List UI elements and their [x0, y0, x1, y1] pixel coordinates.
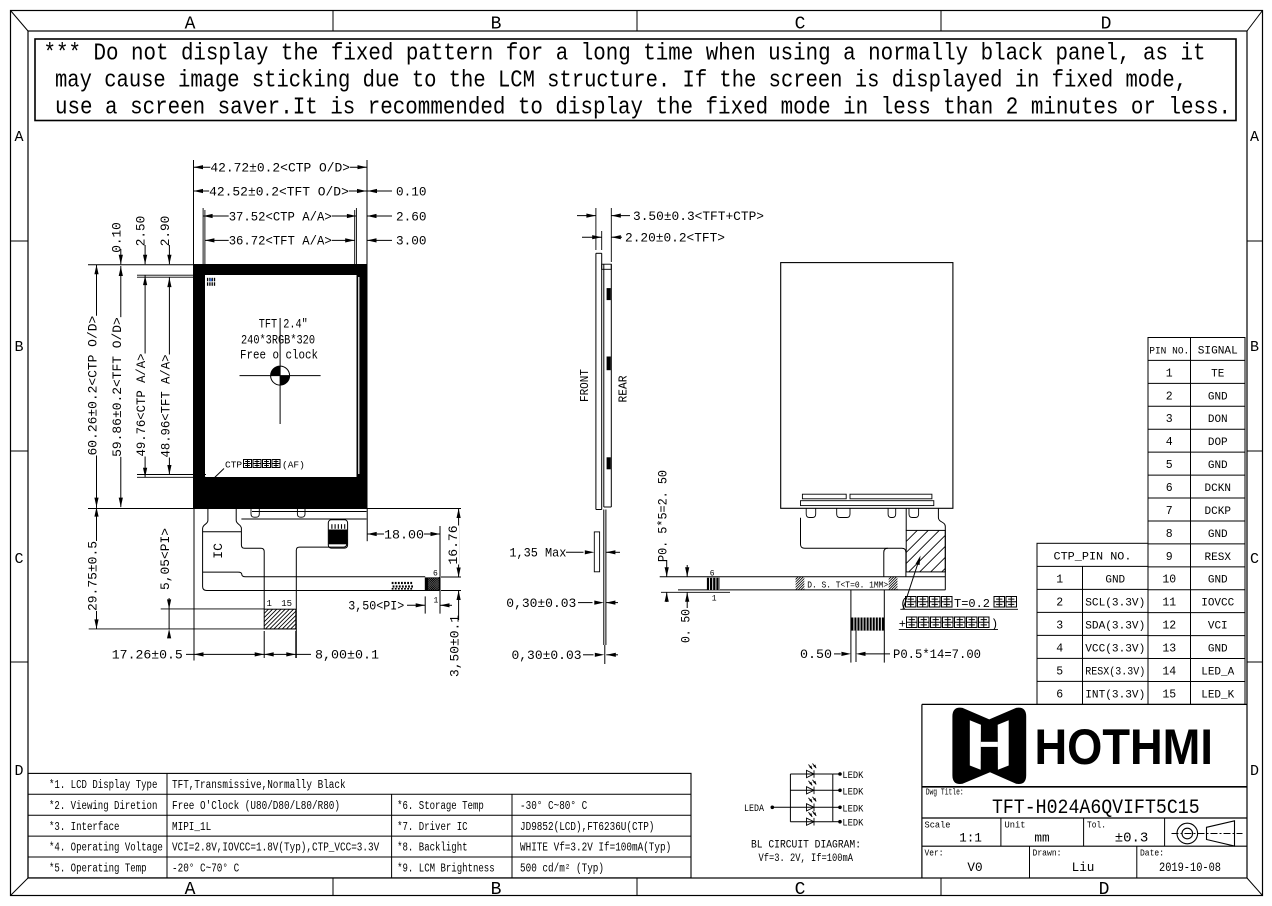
svg-text:B: B — [14, 339, 23, 356]
svg-text:48.96<TFT A/A>: 48.96<TFT A/A> — [158, 355, 173, 458]
svg-text:14: 14 — [1162, 665, 1176, 678]
svg-text:1: 1 — [1056, 573, 1063, 586]
svg-text:37.52<CTP A/A>: 37.52<CTP A/A> — [229, 209, 332, 224]
svg-text:LEDA: LEDA — [744, 803, 765, 815]
svg-text:3: 3 — [1056, 619, 1063, 632]
svg-text:±0.3: ±0.3 — [1115, 831, 1149, 847]
svg-text:9: 9 — [1166, 551, 1173, 564]
svg-text:*7. Driver IC: *7. Driver IC — [397, 821, 468, 834]
svg-text:16.76: 16.76 — [446, 526, 461, 565]
svg-text:GND: GND — [1208, 529, 1228, 541]
svg-text:13: 13 — [1162, 643, 1176, 656]
svg-text:TFT 2.4": TFT 2.4" — [259, 317, 308, 332]
svg-text:17.26±0.5: 17.26±0.5 — [112, 648, 183, 663]
svg-text:36.72<TFT A/A>: 36.72<TFT A/A> — [229, 234, 332, 249]
svg-text:18.00: 18.00 — [384, 527, 424, 542]
svg-text:1: 1 — [434, 597, 439, 606]
svg-text:C: C — [1250, 551, 1259, 568]
svg-text:DCKN: DCKN — [1205, 483, 1231, 495]
svg-text:BL CIRCUIT DIAGRAM:: BL CIRCUIT DIAGRAM: — [751, 840, 861, 852]
svg-text:60.26±0.2<CTP O/D>: 60.26±0.2<CTP O/D> — [86, 316, 101, 456]
svg-text:mm: mm — [1034, 831, 1049, 846]
svg-text:RESX: RESX — [1205, 552, 1232, 564]
svg-text:Free O'Clock (U80/D80/L80/R80): Free O'Clock (U80/D80/L80/R80) — [172, 800, 340, 813]
svg-text:B: B — [491, 880, 502, 900]
svg-text:Unit: Unit — [1005, 820, 1026, 831]
svg-text:HOTHMI: HOTHMI — [1035, 719, 1213, 775]
svg-text:4: 4 — [1166, 436, 1173, 449]
svg-text:12: 12 — [1162, 620, 1176, 633]
svg-text:GND: GND — [1208, 644, 1228, 656]
svg-text:5: 5 — [1056, 665, 1063, 678]
svg-text:11: 11 — [1162, 597, 1176, 610]
svg-text:INT(3.3V): INT(3.3V) — [1085, 689, 1145, 701]
svg-text:D. S. T<T=0. 1MM>: D. S. T<T=0. 1MM> — [807, 580, 888, 591]
svg-text:*6. Storage Temp: *6. Storage Temp — [397, 800, 484, 813]
svg-text:0. 50: 0. 50 — [679, 609, 694, 643]
svg-text:P0.5*14=7.00: P0.5*14=7.00 — [893, 647, 981, 662]
svg-text:LEDK: LEDK — [842, 786, 864, 798]
svg-text:MIPI_1L: MIPI_1L — [172, 821, 211, 834]
svg-text:6: 6 — [1166, 482, 1173, 495]
svg-text:DON: DON — [1208, 414, 1228, 426]
svg-text:D: D — [1101, 14, 1112, 34]
svg-text:LEDK: LEDK — [842, 818, 864, 830]
svg-text:2: 2 — [1166, 390, 1173, 403]
svg-text:5: 5 — [1166, 459, 1173, 472]
svg-text:B: B — [1250, 339, 1259, 356]
svg-text:2.50: 2.50 — [134, 216, 149, 246]
svg-text:49.76<CTP A/A>: 49.76<CTP A/A> — [134, 354, 149, 457]
svg-text:SCL(3.3V): SCL(3.3V) — [1085, 597, 1145, 609]
svg-text:C: C — [795, 880, 806, 900]
svg-text:VCI: VCI — [1208, 621, 1228, 633]
svg-text:3,50<PI>: 3,50<PI> — [348, 599, 404, 614]
svg-text:A: A — [185, 14, 196, 34]
svg-text:42.52±0.2<TFT O/D>: 42.52±0.2<TFT O/D> — [209, 184, 349, 199]
svg-text:CTP: CTP — [225, 460, 242, 471]
svg-text:LED_K: LED_K — [1201, 689, 1234, 701]
svg-text:3: 3 — [1166, 413, 1173, 426]
svg-text:A: A — [185, 880, 196, 900]
svg-text:10: 10 — [1162, 574, 1176, 587]
svg-text:D: D — [1250, 763, 1259, 780]
svg-text:1: 1 — [267, 599, 272, 609]
svg-text:D: D — [1099, 880, 1110, 900]
svg-text:8: 8 — [1166, 528, 1173, 541]
svg-text:P0. 5*5=2. 50: P0. 5*5=2. 50 — [656, 470, 671, 562]
svg-text:(AF): (AF) — [282, 460, 305, 471]
svg-text:CTP_PIN NO.: CTP_PIN NO. — [1054, 551, 1132, 563]
svg-text:REAR: REAR — [618, 375, 631, 402]
svg-text:5,05<PI>: 5,05<PI> — [158, 528, 173, 590]
svg-text:6: 6 — [710, 569, 715, 578]
svg-text:IOVCC: IOVCC — [1201, 598, 1234, 610]
svg-text:7: 7 — [1166, 505, 1173, 518]
svg-text:59.86±0.2<TFT O/D>: 59.86±0.2<TFT O/D> — [110, 317, 125, 457]
svg-text:SDA(3.3V): SDA(3.3V) — [1085, 620, 1145, 632]
svg-text:*2. Viewing Diretion: *2. Viewing Diretion — [49, 800, 157, 813]
svg-text:SIGNAL: SIGNAL — [1198, 345, 1238, 357]
svg-text:V0: V0 — [967, 860, 982, 875]
svg-text:0,30±0.03: 0,30±0.03 — [512, 648, 582, 663]
svg-text:8,00±0.1: 8,00±0.1 — [315, 648, 379, 663]
svg-text:0.10: 0.10 — [396, 184, 426, 199]
svg-text:A: A — [14, 129, 23, 146]
svg-text:Scale: Scale — [925, 820, 951, 831]
svg-text:Free o clock: Free o clock — [240, 348, 318, 363]
svg-text:6: 6 — [1056, 688, 1063, 701]
svg-text:2019-10-08: 2019-10-08 — [1159, 860, 1221, 875]
svg-text:2.60: 2.60 — [396, 209, 426, 224]
svg-text:*4. Operating Voltage: *4. Operating Voltage — [49, 842, 163, 855]
svg-text:VCI=2.8V,IOVCC=1.8V(Typ),CTP_V: VCI=2.8V,IOVCC=1.8V(Typ),CTP_VCC=3.3V — [172, 842, 379, 855]
svg-text:Date:: Date: — [1140, 848, 1164, 859]
svg-text:DOP: DOP — [1208, 437, 1228, 449]
svg-text:29.75±0.5: 29.75±0.5 — [86, 541, 101, 611]
svg-text:15: 15 — [1162, 688, 1176, 701]
svg-text:Tol.: Tol. — [1087, 820, 1106, 831]
svg-text:use a screen saver.It is recom: use a screen saver.It is recommended to … — [55, 95, 1231, 122]
svg-text:*** Do not display the fixed p: *** Do not display the fixed pattern for… — [44, 41, 1206, 68]
svg-text:Dwg Title:: Dwg Title: — [926, 788, 964, 798]
svg-text:GND: GND — [1208, 575, 1228, 587]
svg-text:15: 15 — [281, 599, 292, 609]
svg-text:-20° C~70° C: -20° C~70° C — [172, 863, 239, 876]
svg-text:LEDK: LEDK — [842, 770, 864, 782]
svg-text:4: 4 — [1056, 642, 1063, 655]
svg-text:*5. Operating Temp: *5. Operating Temp — [49, 863, 147, 876]
svg-text:1:1: 1:1 — [959, 831, 982, 846]
svg-text:Drawn:: Drawn: — [1033, 848, 1062, 859]
svg-text:B: B — [491, 14, 502, 34]
svg-text:LED_A: LED_A — [1201, 666, 1234, 678]
svg-text:WHITE Vf=3.2V If=100mA(Typ): WHITE Vf=3.2V If=100mA(Typ) — [520, 842, 671, 855]
svg-text:C: C — [795, 14, 806, 34]
svg-text:FRONT: FRONT — [579, 369, 592, 402]
svg-text:0.10: 0.10 — [109, 222, 124, 252]
svg-text:may cause image sticking due t: may cause image sticking due to the LCM … — [55, 68, 1187, 95]
svg-text:0.50: 0.50 — [800, 647, 832, 662]
svg-text:1: 1 — [712, 595, 717, 604]
svg-text:JD9852(LCD),FT6236U(CTP): JD9852(LCD),FT6236U(CTP) — [520, 821, 654, 834]
svg-text:*3. Interface: *3. Interface — [49, 821, 120, 834]
svg-text:Vf=3. 2V, If=100mA: Vf=3. 2V, If=100mA — [759, 853, 854, 865]
svg-text:3.50±0.3<TFT+CTP>: 3.50±0.3<TFT+CTP> — [633, 209, 764, 224]
svg-text:GND: GND — [1208, 391, 1228, 403]
svg-text:A: A — [1250, 129, 1259, 146]
svg-text:3.00: 3.00 — [396, 234, 426, 249]
svg-text:0,30±0.03: 0,30±0.03 — [506, 596, 576, 611]
svg-text:2.90: 2.90 — [158, 216, 173, 246]
svg-text:*1. LCD Display Type: *1. LCD Display Type — [49, 779, 157, 792]
svg-text:LEDK: LEDK — [842, 803, 864, 815]
svg-text:C: C — [14, 551, 23, 568]
svg-text:42.72±0.2<CTP O/D>: 42.72±0.2<CTP O/D> — [210, 161, 350, 176]
svg-text:Ver:: Ver: — [925, 848, 944, 859]
svg-text:TFT-H024A6QVIFT5C15: TFT-H024A6QVIFT5C15 — [992, 797, 1200, 820]
svg-text:-30° C~80° C: -30° C~80° C — [520, 800, 587, 813]
svg-text:IC: IC — [211, 543, 226, 559]
svg-text:PIN NO.: PIN NO. — [1149, 345, 1189, 357]
svg-text:RESX(3.3V): RESX(3.3V) — [1085, 666, 1145, 678]
svg-text:500 cd/m² (Typ): 500 cd/m² (Typ) — [520, 863, 604, 876]
svg-text:D: D — [14, 763, 23, 780]
svg-text:*8. Backlight: *8. Backlight — [397, 842, 467, 855]
svg-text:3,50±0.1: 3,50±0.1 — [448, 615, 463, 677]
svg-text:GND: GND — [1105, 574, 1125, 586]
svg-text:VCC(3.3V): VCC(3.3V) — [1085, 643, 1145, 655]
svg-text:240*3RGB*320: 240*3RGB*320 — [241, 333, 315, 348]
svg-text:DCKP: DCKP — [1205, 506, 1232, 518]
svg-text:2: 2 — [1056, 596, 1063, 609]
svg-text:1: 1 — [1166, 367, 1173, 380]
svg-text:1,35 Max: 1,35 Max — [509, 546, 566, 561]
svg-text:2.20±0.2<TFT>: 2.20±0.2<TFT> — [625, 231, 725, 246]
svg-text:GND: GND — [1208, 460, 1228, 472]
svg-text:6: 6 — [433, 570, 438, 579]
svg-text:TFT,Transmissive,Normally Blac: TFT,Transmissive,Normally Black — [172, 779, 346, 792]
svg-text:*9. LCM Brightness: *9. LCM Brightness — [397, 863, 495, 876]
svg-text:TE: TE — [1211, 368, 1225, 380]
svg-text:Liu: Liu — [1072, 860, 1095, 875]
